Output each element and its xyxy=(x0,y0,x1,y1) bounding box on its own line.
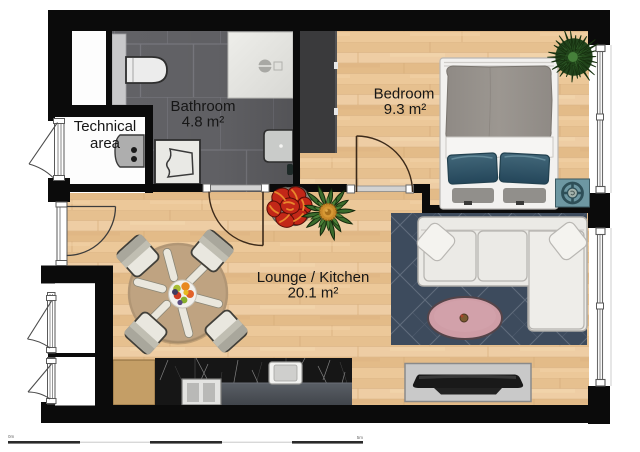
svg-text:area: area xyxy=(90,135,121,152)
svg-text:9.3 m²: 9.3 m² xyxy=(384,101,427,118)
svg-text:Technical: Technical xyxy=(74,118,137,135)
svg-text:0m: 0m xyxy=(8,434,15,439)
svg-text:Bathroom: Bathroom xyxy=(170,98,235,115)
svg-text:4.8 m²: 4.8 m² xyxy=(182,114,225,131)
svg-text:Lounge / Kitchen: Lounge / Kitchen xyxy=(257,269,370,286)
svg-text:5m: 5m xyxy=(357,435,364,440)
svg-text:20.1 m²: 20.1 m² xyxy=(288,285,339,302)
svg-text:Bedroom: Bedroom xyxy=(374,86,435,103)
